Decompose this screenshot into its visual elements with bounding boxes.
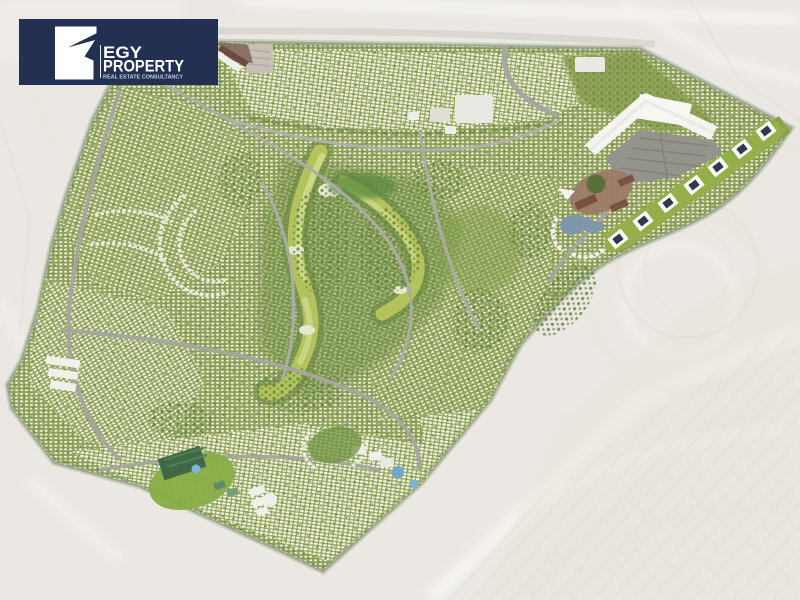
- svg-text:REAL ESTATE CONSULTANCY: REAL ESTATE CONSULTANCY: [103, 75, 183, 81]
- svg-text:PROPERTY: PROPERTY: [103, 58, 184, 76]
